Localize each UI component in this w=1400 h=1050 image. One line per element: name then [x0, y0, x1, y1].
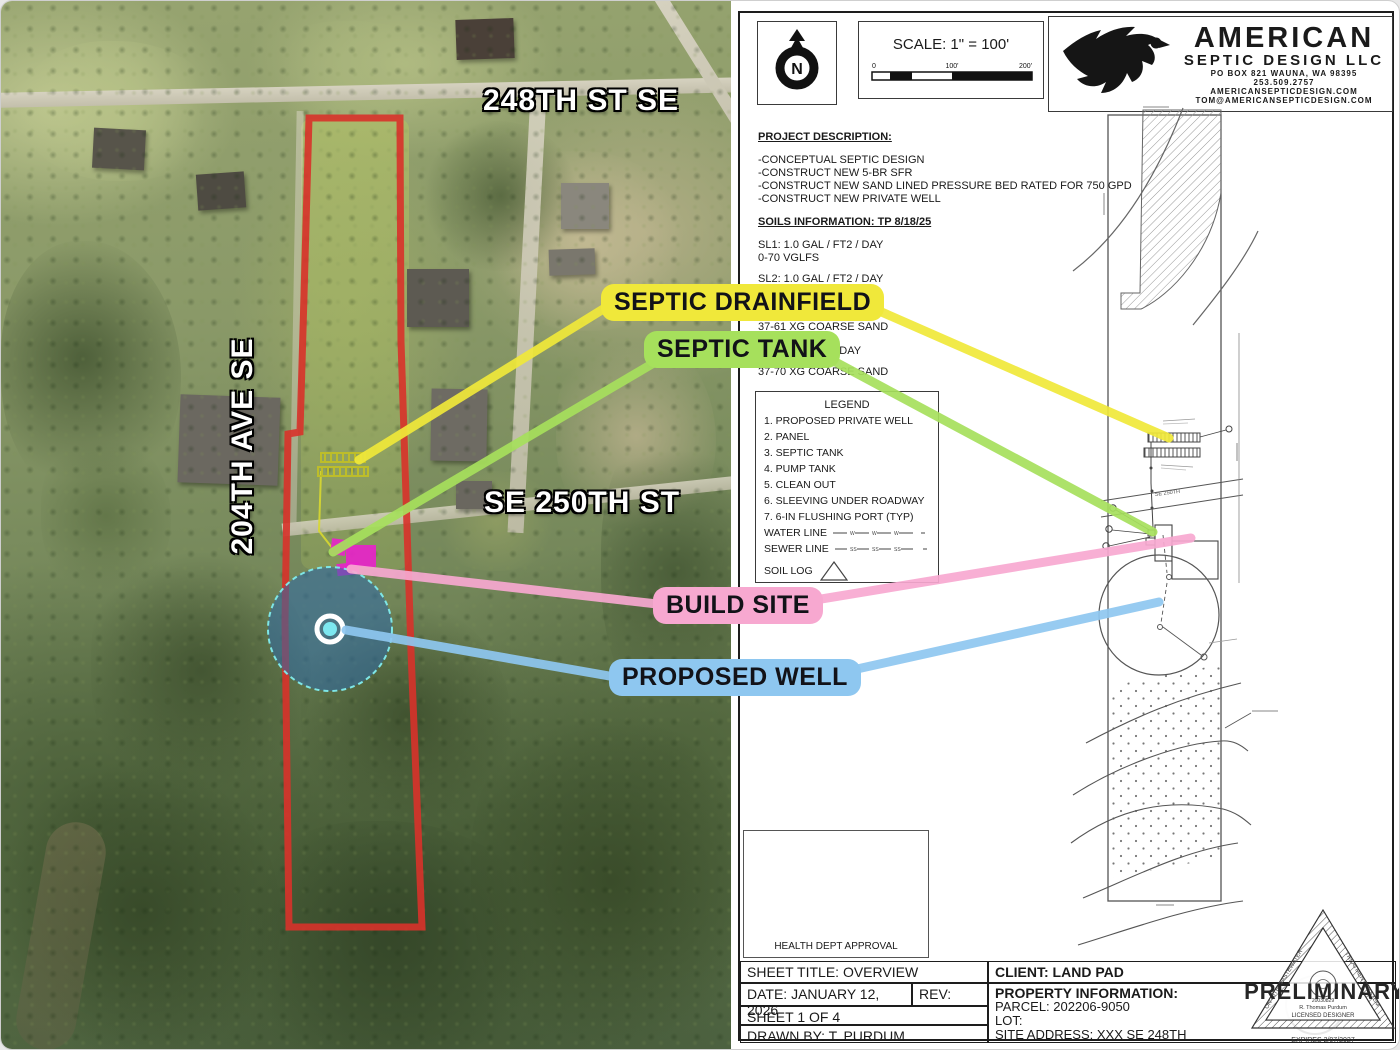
street-label-250th: SE 250TH ST [484, 486, 680, 520]
callout-septic-tank: SEPTIC TANK [644, 331, 840, 368]
parcel-overlay [1, 1, 731, 1050]
titleblock-rev: REV: [912, 983, 988, 1006]
legend-item: 4. PUMP TANK [764, 463, 938, 475]
legend-item: 6. SLEEVING UNDER ROADWAY [764, 495, 938, 507]
north-arrow-box: N [757, 21, 837, 105]
site-plan-drawing: SE 250TH [1043, 103, 1399, 948]
svg-text:W: W [872, 531, 877, 537]
parcel-boundary [285, 118, 422, 927]
project-item: -CONCEPTUAL SEPTIC DESIGN [758, 154, 924, 167]
svg-text:W: W [850, 531, 855, 537]
street-label-204th: 204TH AVE SE [226, 316, 266, 576]
logo-line2: SEPTIC DESIGN LLC [1179, 53, 1389, 69]
plan-sheet: N SCALE: 1" = 100' 0 100' 200' AME [738, 11, 1394, 1041]
project-item: -CONSTRUCT NEW PRIVATE WELL [758, 193, 941, 206]
legend-item: 5. CLEAN OUT [764, 479, 938, 491]
logo-line1: AMERICAN [1179, 23, 1389, 53]
callout-proposed-well: PROPOSED WELL [609, 659, 861, 696]
logo-line4: 253.509.2757 [1179, 78, 1389, 87]
logo-line5: AMERICANSEPTICDESIGN.COM [1179, 87, 1389, 96]
scale-title: SCALE: 1" = 100' [859, 36, 1043, 53]
callout-septic-drainfield: SEPTIC DRAINFIELD [601, 284, 884, 321]
svg-text:LICENSED DESIGNER: LICENSED DESIGNER [1291, 1013, 1355, 1019]
svg-text:0: 0 [872, 63, 876, 70]
svg-text:SE 250TH: SE 250TH [1155, 489, 1181, 498]
soil-log-symbol [819, 559, 849, 583]
legend-item: 7. 6-IN FLUSHING PORT (TYP) [764, 511, 938, 523]
legend-item: 3. SEPTIC TANK [764, 447, 938, 459]
legend-item: 1. PROPOSED PRIVATE WELL [764, 415, 938, 427]
eagle-icon [1055, 21, 1180, 107]
titleblock-drawn-by: DRAWN BY: T. PURDUM [740, 1025, 988, 1043]
legend-box: LEGEND 1. PROPOSED PRIVATE WELL 2. PANEL… [755, 391, 939, 583]
north-arrow-icon: N [767, 28, 827, 98]
soils-line: 0-70 VGLFS [758, 252, 819, 265]
aerial-photo: 248TH ST SE SE 250TH ST 204TH AVE SE [1, 1, 731, 1050]
project-item: -CONSTRUCT NEW 5-BR SFR [758, 167, 912, 180]
legend-sewer-label: SEWER LINE [764, 543, 829, 555]
svg-text:SS: SS [894, 547, 901, 553]
scale-box: SCALE: 1" = 100' 0 100' 200' [858, 21, 1044, 99]
preliminary-watermark: PRELIMINARY [1235, 979, 1400, 1005]
svg-text:100': 100' [945, 63, 958, 70]
soils-line: SL1: 1.0 GAL / FT2 / DAY [758, 239, 883, 252]
svg-text:EXPIRES 2/07/2027: EXPIRES 2/07/2027 [1291, 1037, 1355, 1044]
water-line-symbol: W W W [833, 528, 925, 538]
titleblock-sheet-title: SHEET TITLE: OVERVIEW [740, 961, 988, 983]
drainfield-marker [318, 453, 368, 476]
soils-heading: SOILS INFORMATION: TP 8/18/25 [758, 216, 931, 229]
svg-text:200': 200' [1019, 63, 1032, 70]
titleblock-sheet-no: SHEET 1 OF 4 [740, 1006, 988, 1025]
well-radius-marker [268, 567, 392, 691]
svg-text:N: N [791, 61, 803, 78]
logo-box: AMERICAN SEPTIC DESIGN LLC PO BOX 821 WA… [1048, 16, 1393, 112]
scale-bar: 0 100' 200' [862, 60, 1042, 92]
legend-soil-label: SOIL LOG [764, 565, 813, 577]
callout-build-site: BUILD SITE [653, 587, 823, 624]
project-heading: PROJECT DESCRIPTION: [758, 131, 892, 144]
health-approval-box: HEALTH DEPT APPROVAL [743, 830, 929, 958]
svg-text:W: W [894, 531, 899, 537]
legend-water-label: WATER LINE [764, 527, 827, 539]
logo-line3: PO BOX 821 WAUNA, WA 98395 [1179, 69, 1389, 78]
svg-text:SS: SS [850, 547, 857, 553]
titleblock-date: DATE: JANUARY 12, 2026 [740, 983, 912, 1006]
street-label-248th: 248TH ST SE [483, 84, 679, 118]
health-approval-label: HEALTH DEPT APPROVAL [744, 941, 928, 952]
sewer-line-symbol: SS SS SS [835, 544, 927, 554]
svg-text:SS: SS [872, 547, 879, 553]
designer-stamp: ON-SITE WASTEWATER TREATMENT SYSTEM 2003… [1248, 896, 1400, 1048]
legend-item: 2. PANEL [764, 431, 938, 443]
legend-title: LEGEND [756, 399, 938, 411]
screenshot-root: 248TH ST SE SE 250TH ST 204TH AVE SE N S… [0, 0, 1400, 1050]
svg-text:R. Thomas Purdum: R. Thomas Purdum [1299, 1005, 1347, 1011]
